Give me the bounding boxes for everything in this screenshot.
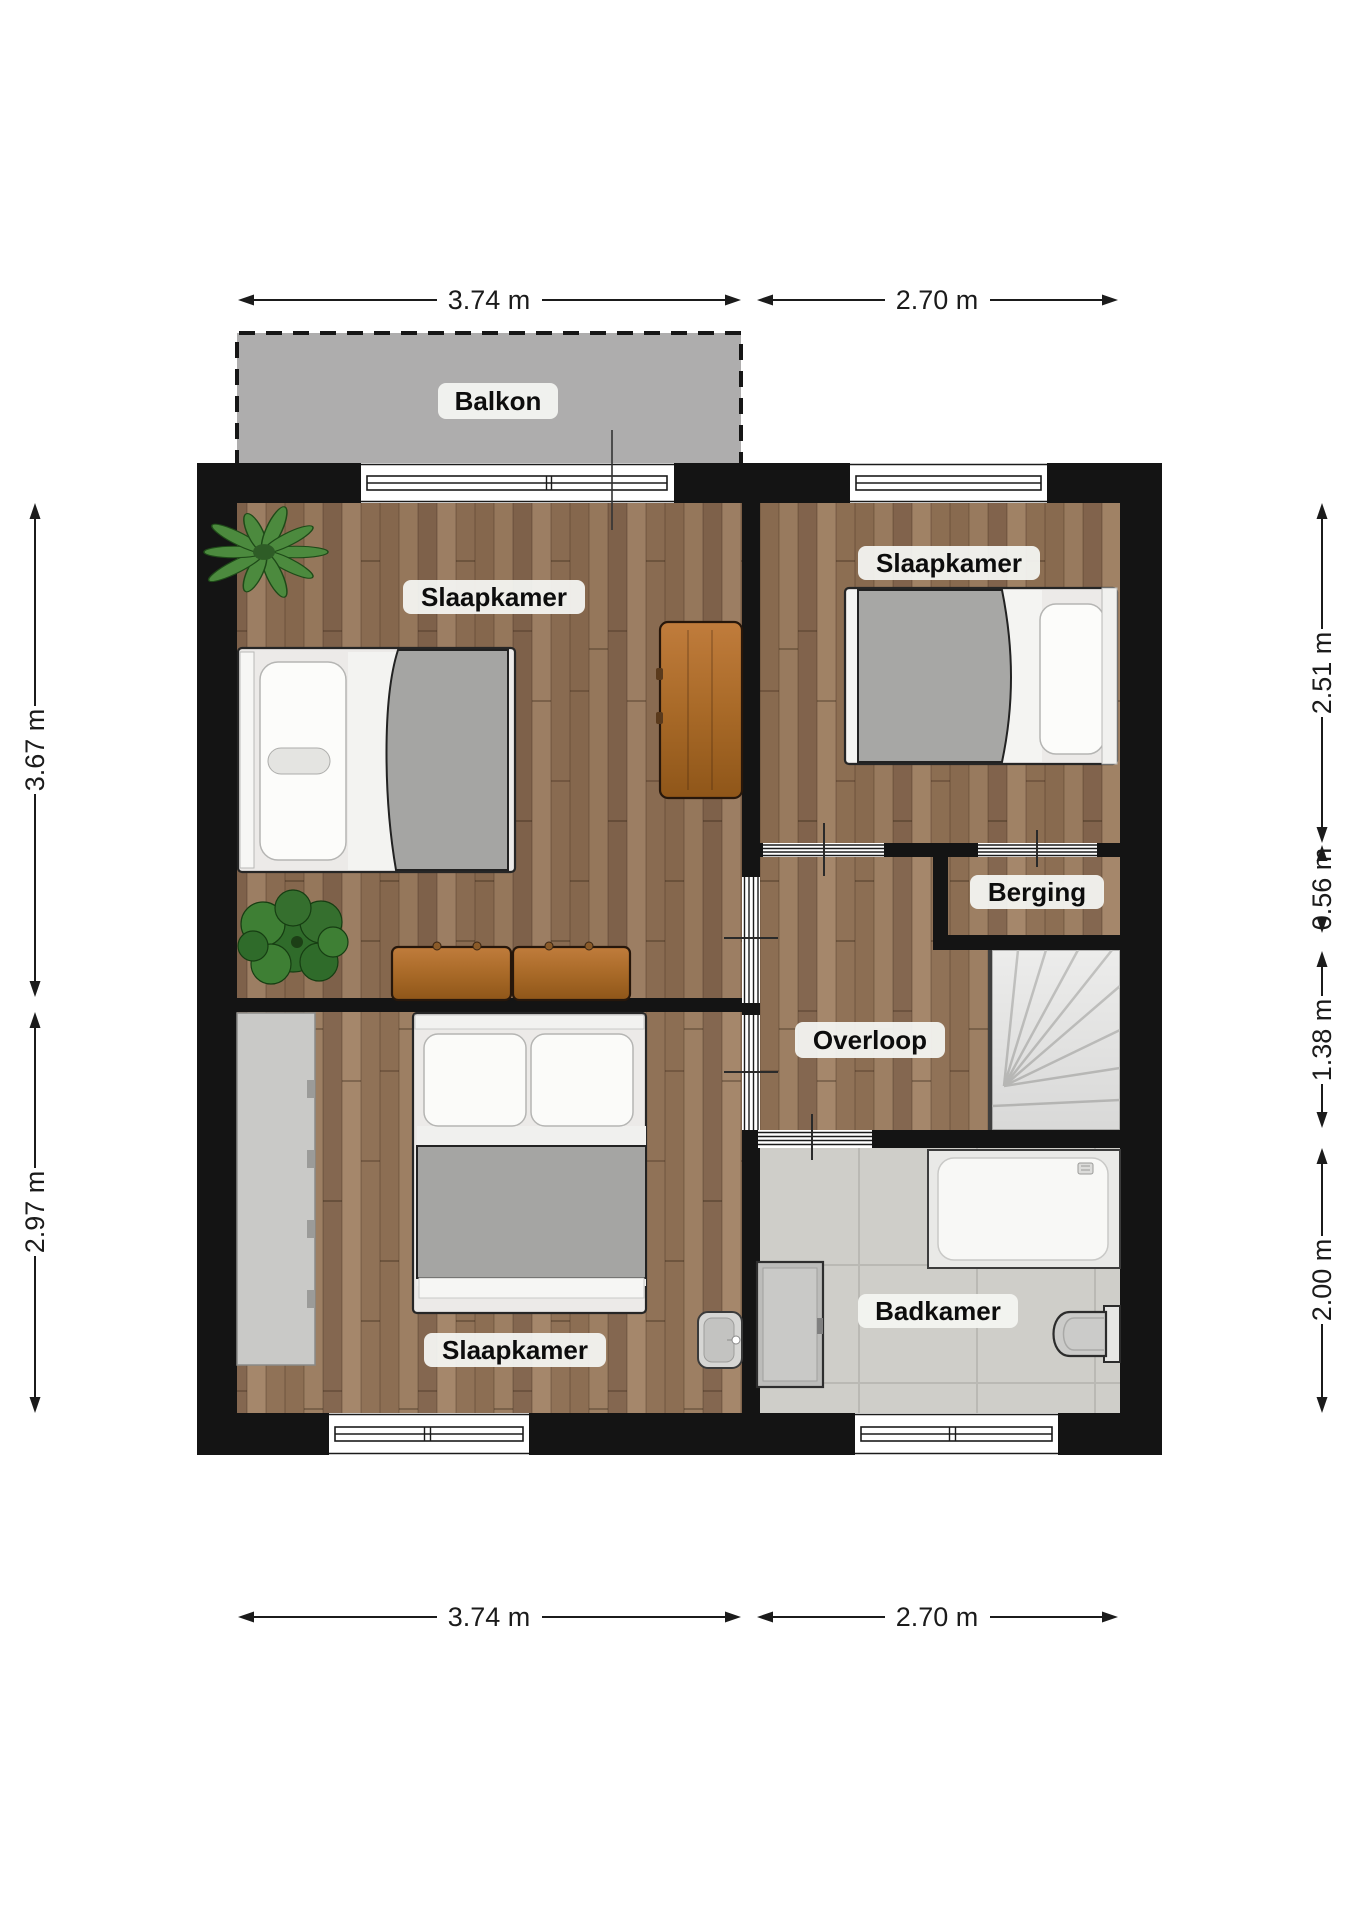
bed-double-top-left xyxy=(238,648,515,872)
dresser-knob xyxy=(433,942,441,950)
dim-bottom-left-text: 3.74 m xyxy=(448,1602,531,1632)
dim-right-stairs-text: 1.38 m xyxy=(1307,999,1337,1082)
bed-headboard xyxy=(240,652,254,868)
bed-double-bottom xyxy=(413,1013,646,1313)
dim-bottom-left: 3.74 m xyxy=(238,1602,741,1632)
wall-top-b xyxy=(674,463,850,503)
dim-left-upper-text: 3.67 m xyxy=(20,709,50,792)
floorplan-page: Balkon Slaapkamer Slaapkamer Berging Ove… xyxy=(0,0,1358,1920)
window-bedroom-top-right xyxy=(850,463,1047,503)
desk-handle xyxy=(656,668,663,680)
dresser-knob xyxy=(545,942,553,950)
wall-right xyxy=(1120,463,1162,1455)
dim-bottom-right: 2.70 m xyxy=(757,1602,1118,1632)
wall-bathroom-top-b xyxy=(872,1130,1120,1148)
dim-right-bathroom-text: 2.00 m xyxy=(1307,1239,1337,1322)
wall-storage-left xyxy=(933,857,948,935)
bathroom-cabinet xyxy=(757,1262,823,1387)
bed-single-top-right xyxy=(845,588,1117,764)
bed-headboard xyxy=(1102,588,1117,764)
wardrobe xyxy=(237,1013,315,1365)
dim-top-right: 2.70 m xyxy=(757,285,1118,315)
dim-right-bedroom: 2.51 m xyxy=(1307,503,1337,843)
label-bedroom-bottom-text: Slaapkamer xyxy=(442,1335,588,1365)
dim-top-right-text: 2.70 m xyxy=(896,285,979,315)
wall-bottom-b xyxy=(529,1413,855,1455)
wall-right-zone-a xyxy=(742,843,763,857)
dim-bottom-right-text: 2.70 m xyxy=(896,1602,979,1632)
wall-left xyxy=(197,463,237,1455)
dim-top-left: 3.74 m xyxy=(238,285,741,315)
cabinet-handle xyxy=(817,1318,823,1334)
staircase xyxy=(988,950,1120,1130)
bed-bolster xyxy=(268,748,330,774)
label-bathroom-text: Badkamer xyxy=(875,1296,1001,1326)
desk-handle xyxy=(656,712,663,724)
label-bedroom-top-right-text: Slaapkamer xyxy=(876,548,1022,578)
wardrobe-handle xyxy=(307,1150,315,1168)
label-bedroom-top-right: Slaapkamer xyxy=(858,546,1040,580)
label-landing-text: Overloop xyxy=(813,1025,927,1055)
wall-bottom-c xyxy=(1058,1413,1162,1455)
shower xyxy=(928,1150,1120,1268)
wall-storage-bottom xyxy=(933,935,1120,950)
dresser-right xyxy=(513,942,630,1000)
bed-fold xyxy=(419,1278,644,1298)
sink xyxy=(698,1312,742,1368)
bed-pillow-left xyxy=(424,1034,526,1126)
sink-faucet xyxy=(732,1336,740,1344)
label-storage-text: Berging xyxy=(988,877,1086,907)
label-balcony: Balkon xyxy=(438,383,558,419)
desk xyxy=(656,622,742,798)
bed-duvet xyxy=(858,590,1011,762)
bed-pillow xyxy=(1040,604,1104,754)
stairs-left-edge xyxy=(988,950,992,1130)
wall-right-zone-b xyxy=(884,843,978,857)
label-landing: Overloop xyxy=(795,1022,945,1058)
dim-right-storage: 0.56 m xyxy=(1307,845,1337,933)
label-bedroom-top-left-text: Slaapkamer xyxy=(421,582,567,612)
wardrobe-handle xyxy=(307,1290,315,1308)
label-bedroom-top-left: Slaapkamer xyxy=(403,580,585,614)
bed-headboard xyxy=(415,1015,644,1029)
dim-left-lower: 2.97 m xyxy=(20,1012,50,1413)
dim-right-bathroom: 2.00 m xyxy=(1307,1148,1337,1413)
label-bedroom-bottom: Slaapkamer xyxy=(424,1333,606,1367)
label-balcony-text: Balkon xyxy=(455,386,542,416)
bed-pillow-right xyxy=(531,1034,633,1126)
window-bathroom xyxy=(855,1413,1058,1455)
dim-top-left-text: 3.74 m xyxy=(448,285,531,315)
dresser-knob xyxy=(473,942,481,950)
dim-right-bedroom-text: 2.51 m xyxy=(1307,632,1337,715)
wardrobe-handle xyxy=(307,1080,315,1098)
bed-duvet xyxy=(417,1146,646,1278)
wall-bottom-a xyxy=(197,1413,329,1455)
wall-bathroom-top-a xyxy=(742,1130,758,1148)
label-storage: Berging xyxy=(970,875,1104,909)
shower-drain xyxy=(1078,1163,1093,1174)
label-bathroom: Badkamer xyxy=(858,1294,1018,1328)
dresser-left xyxy=(392,942,511,1000)
toilet xyxy=(1054,1306,1121,1362)
wall-right-zone-c xyxy=(1097,843,1120,857)
dim-left-upper: 3.67 m xyxy=(20,503,50,997)
wall-mid-vertical-upper xyxy=(742,503,760,877)
dim-left-lower-text: 2.97 m xyxy=(20,1171,50,1254)
plant-bush xyxy=(238,890,348,984)
wardrobe-handle xyxy=(307,1220,315,1238)
dresser-knob xyxy=(585,942,593,950)
floorplan-drawing: Balkon Slaapkamer Slaapkamer Berging Ove… xyxy=(0,0,1358,1920)
window-bedroom-bottom xyxy=(329,1413,529,1455)
dim-right-storage-text: 0.56 m xyxy=(1307,848,1337,931)
bed-duvet xyxy=(387,650,509,870)
dim-right-stairs: 1.38 m xyxy=(1307,951,1337,1128)
